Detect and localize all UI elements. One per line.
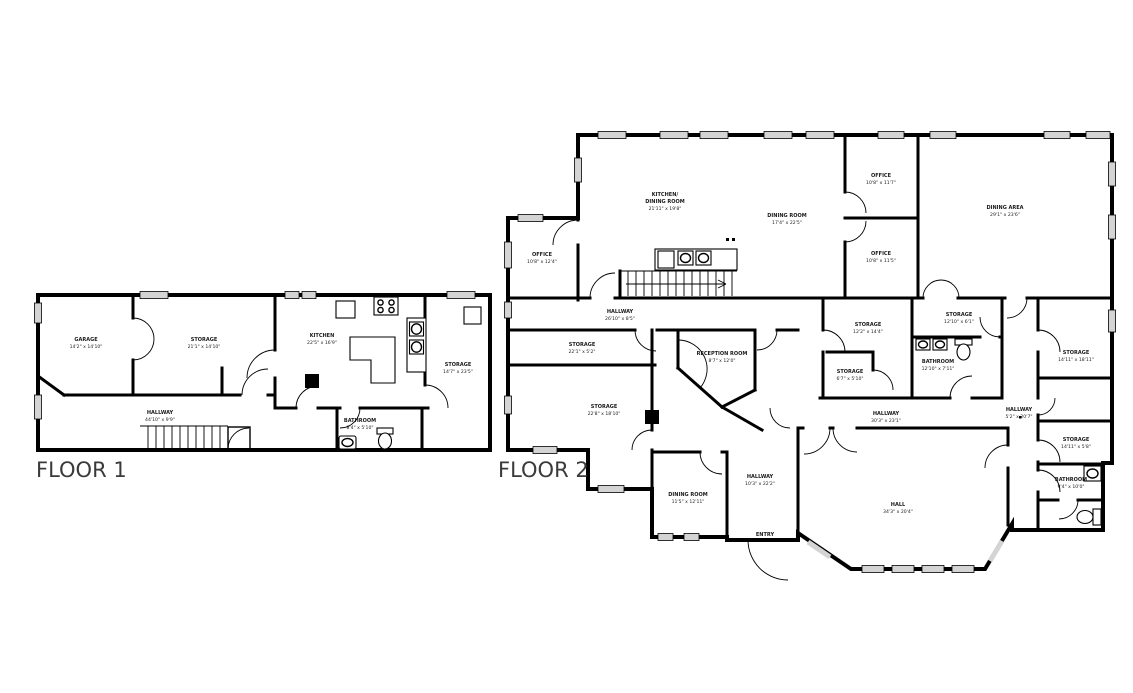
floor1-title: FLOOR 1	[36, 458, 127, 482]
room-dims: 10'8" x 11'5"	[866, 258, 896, 264]
room-label: HALLWAY	[1006, 407, 1033, 413]
floor2-title: FLOOR 2	[498, 458, 589, 482]
room-label: OFFICE	[871, 173, 892, 179]
floor1-doors	[133, 318, 448, 428]
room-dims: 5'2" x 20'7"	[1005, 414, 1032, 420]
room-label: STORAGE	[569, 342, 596, 348]
room-label: DINING ROOM	[645, 199, 684, 205]
room-label: STORAGE	[946, 312, 973, 318]
room-dims: 14'2" x 14'10"	[70, 344, 103, 350]
room-label: OFFICE	[532, 252, 553, 258]
floor2-staircase	[620, 271, 737, 296]
room-label: HALL	[891, 502, 906, 508]
floor2-exterior-walls	[508, 135, 1112, 569]
room-label: STORAGE	[445, 362, 472, 368]
floor2-right-bathroom-fixtures	[1077, 466, 1101, 525]
room-label: STORAGE	[591, 404, 618, 410]
room-dims: 30'3" x 23'1"	[871, 418, 901, 424]
room-dims: 29'1" x 23'6"	[990, 212, 1020, 218]
floor1-bathroom-fixtures	[339, 428, 393, 449]
room-label: KITCHEN/	[652, 192, 679, 198]
room-dims: 21'11" x 19'8"	[649, 206, 682, 212]
room-label: DINING AREA	[986, 205, 1023, 211]
room-label: ENTRY	[756, 532, 775, 538]
room-label: HALLWAY	[873, 411, 900, 417]
room-label: STORAGE	[837, 369, 864, 375]
room-dims: 12'10" x 7'11"	[922, 366, 955, 372]
room-label: BATHROOM	[1055, 477, 1087, 483]
appliance-icon	[305, 374, 319, 388]
floor2-plan: KITCHEN/ DINING ROOM 21'11" x 19'8" DINI…	[498, 132, 1116, 581]
room-label: OFFICE	[871, 251, 892, 257]
room-label: RECEPTION ROOM	[697, 351, 748, 357]
room-dims: 11'5" x 12'11"	[672, 499, 705, 505]
room-label: STORAGE	[191, 337, 218, 343]
room-dims: 12'2" x 14'4"	[853, 329, 883, 335]
floor1-staircase	[140, 426, 250, 450]
room-dims: 14'7" x 23'5"	[443, 369, 473, 375]
room-dims: 21'1" x 14'10"	[188, 344, 221, 350]
floor2-kitchen-counter	[655, 249, 737, 270]
room-dims: 22'1" x 5'2"	[568, 349, 595, 355]
room-dims: 8'4" x 5'10"	[346, 425, 373, 431]
floor2-doors	[553, 192, 1078, 580]
floor1-plan: GARAGE 14'2" x 14'10" STORAGE 21'1" x 14…	[35, 292, 491, 483]
room-label: DINING ROOM	[668, 492, 707, 498]
toilet-icon	[379, 433, 392, 449]
room-label: STORAGE	[1063, 437, 1090, 443]
room-dims: 10'3" x 22'2"	[745, 481, 775, 487]
room-label: GARAGE	[74, 337, 98, 343]
room-dims: 10'8" x 11'7"	[866, 180, 896, 186]
cabinet-icon	[336, 301, 355, 318]
room-dims: 26'10" x 8'5"	[605, 316, 635, 322]
cabinet-icon	[658, 251, 674, 268]
room-dims: 9'4" x 10'0"	[1057, 484, 1084, 490]
room-dims: 22'8" x 18'10"	[588, 411, 621, 417]
room-label: HALLWAY	[747, 474, 774, 480]
floorplan-page: GARAGE 14'2" x 14'10" STORAGE 21'1" x 14…	[0, 0, 1133, 693]
room-dims: 14'11" x 5'8"	[1061, 444, 1091, 450]
floor2-mid-bathroom-fixtures	[916, 339, 972, 360]
room-label: BATHROOM	[344, 418, 376, 424]
room-dims: 12'10" x 6'1"	[944, 319, 974, 325]
room-dims: 44'10" x 9'9"	[145, 417, 175, 423]
room-dims: 22'5" x 16'9"	[307, 340, 337, 346]
room-dims: 17'4" x 22'5"	[772, 220, 802, 226]
room-dims: 8'7" x 12'0"	[708, 358, 735, 364]
room-label: BATHROOM	[922, 359, 954, 365]
room-label: HALLWAY	[607, 309, 634, 315]
floor2-interior-walls	[508, 135, 1112, 537]
room-dims: 14'11" x 18'11"	[1058, 357, 1094, 363]
column-icon	[645, 410, 659, 424]
room-dims: 6'7" x 5'10"	[836, 376, 863, 382]
room-label: HALLWAY	[147, 410, 174, 416]
stove-icon	[374, 297, 398, 315]
toilet-tank-icon	[1093, 509, 1101, 525]
room-label: STORAGE	[1063, 350, 1090, 356]
room-label: DINING ROOM	[767, 213, 806, 219]
floorplan-drawing: GARAGE 14'2" x 14'10" STORAGE 21'1" x 14…	[0, 0, 1133, 693]
storage-fixture-icon	[464, 307, 481, 324]
room-dims: 10'8" x 12'4"	[527, 259, 557, 265]
kitchen-island-icon	[350, 337, 395, 383]
room-label: KITCHEN	[310, 333, 335, 339]
room-dims: 34'3" x 20'4"	[883, 509, 913, 515]
toilet-icon	[957, 344, 970, 360]
floor2-windows	[505, 132, 1116, 573]
room-label: STORAGE	[855, 322, 882, 328]
toilet-icon	[1077, 511, 1093, 524]
